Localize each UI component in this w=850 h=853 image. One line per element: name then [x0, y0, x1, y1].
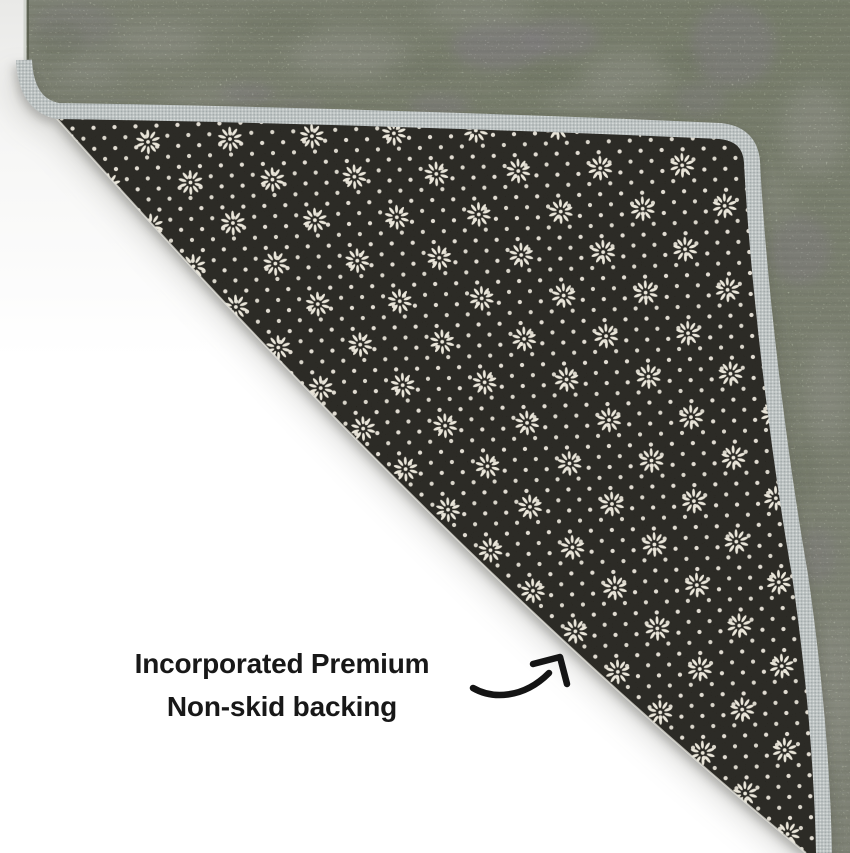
caption-line1: Incorporated Premium [115, 642, 449, 685]
product-image: Incorporated Premium Non-skid backing [0, 0, 850, 853]
arrow-icon [473, 657, 567, 695]
caption: Incorporated Premium Non-skid backing [115, 642, 449, 728]
caption-line2: Non-skid backing [115, 685, 449, 728]
